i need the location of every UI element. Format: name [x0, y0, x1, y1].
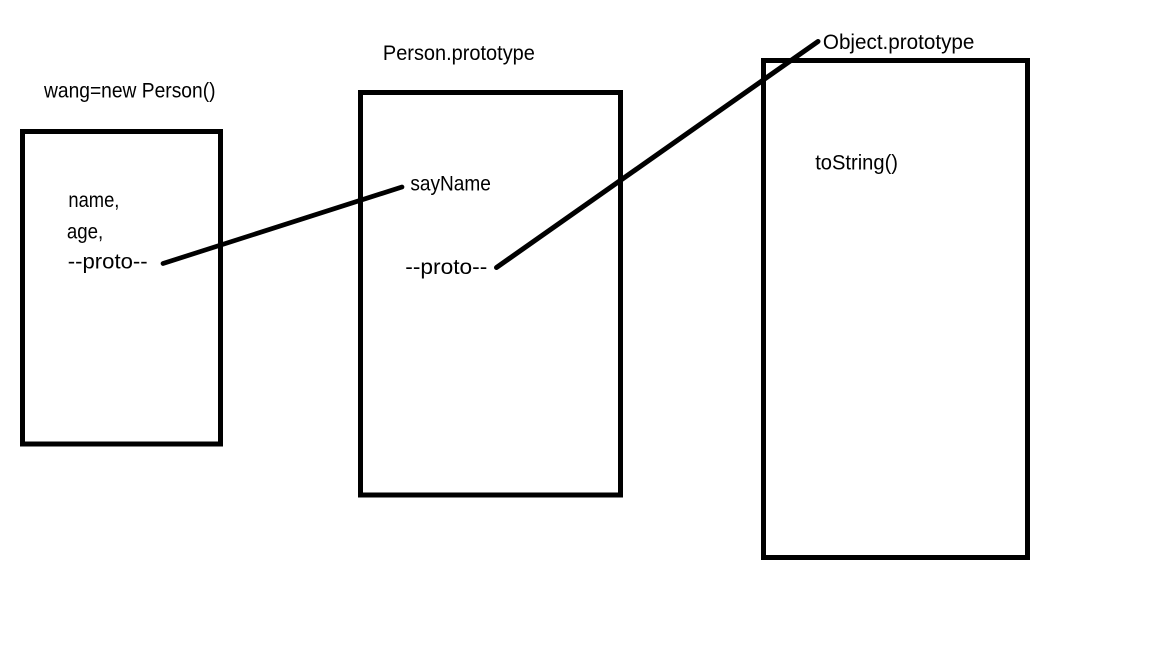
- svg-text:toString(): toString(): [815, 151, 898, 174]
- svg-text:name,: name,: [68, 189, 119, 212]
- svg-text:age,: age,: [67, 221, 103, 244]
- svg-text:Person.prototype: Person.prototype: [383, 42, 535, 65]
- svg-text:wang=new Person(): wang=new Person(): [43, 80, 215, 103]
- svg-text:Object.prototype: Object.prototype: [823, 31, 975, 54]
- svg-text:--proto--: --proto--: [68, 251, 148, 274]
- svg-text:sayName: sayName: [410, 173, 491, 196]
- svg-text:--proto--: --proto--: [405, 256, 487, 279]
